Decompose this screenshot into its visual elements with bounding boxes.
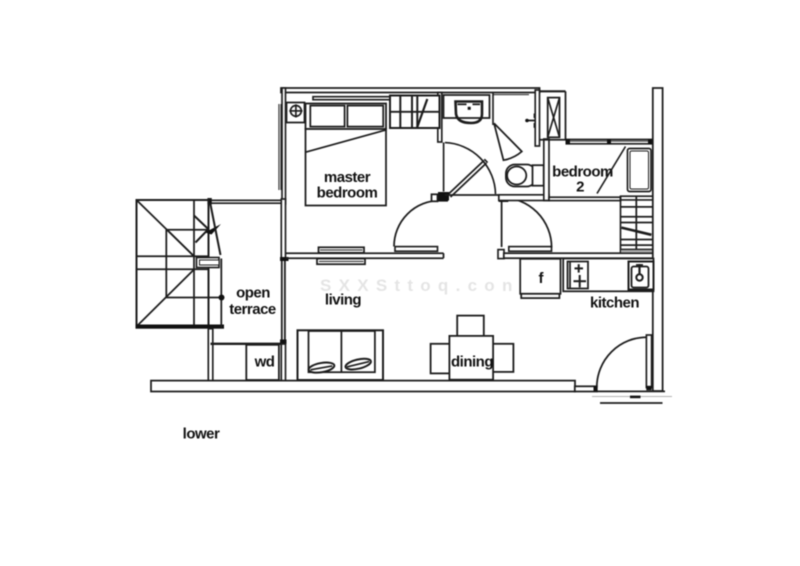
svg-text:open: open: [236, 285, 270, 302]
svg-text:dining: dining: [451, 354, 493, 371]
svg-text:master: master: [324, 169, 371, 186]
svg-text:terrace: terrace: [229, 301, 276, 318]
svg-text:2: 2: [576, 179, 584, 196]
svg-text:wd: wd: [254, 354, 275, 371]
svg-text:lower: lower: [183, 426, 220, 443]
svg-text:bedroom: bedroom: [317, 185, 378, 202]
svg-text:kitchen: kitchen: [590, 295, 639, 312]
svg-text:living: living: [325, 292, 362, 309]
